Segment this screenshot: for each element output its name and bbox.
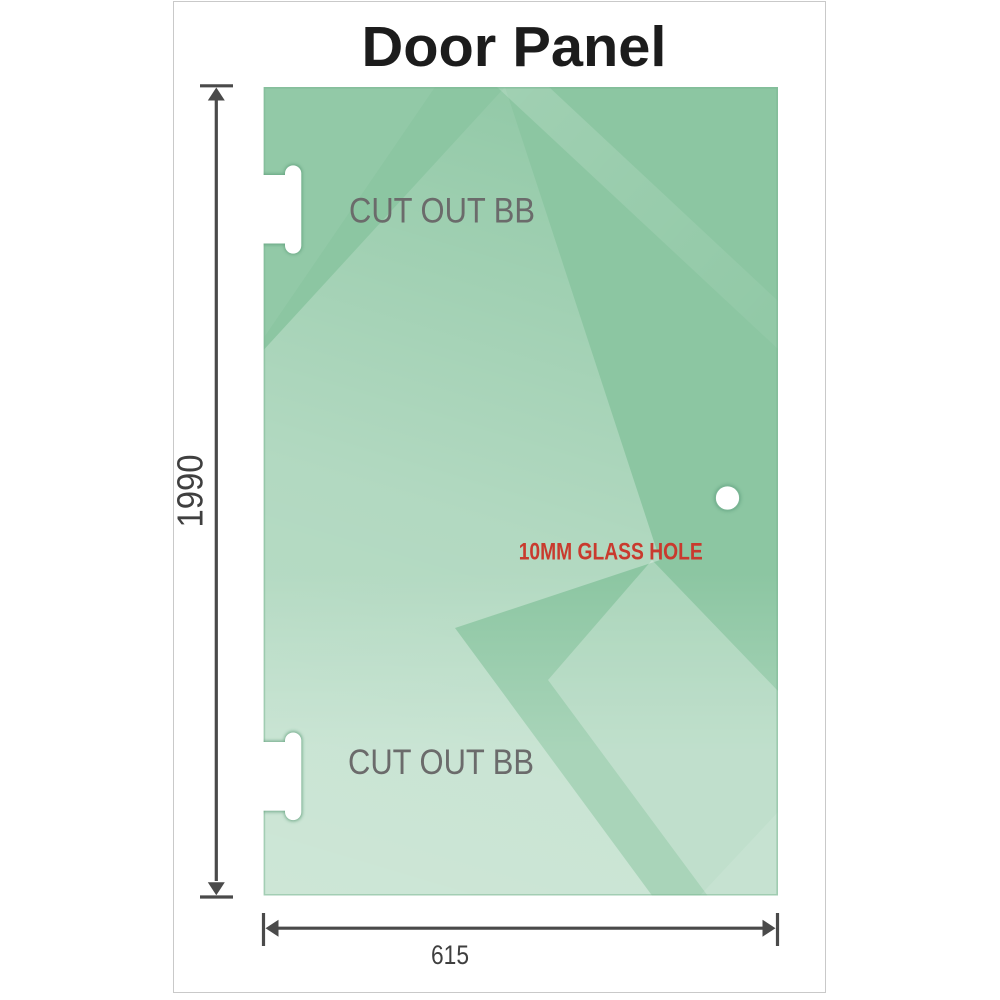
svg-text:CUT OUT BB: CUT OUT BB	[349, 192, 535, 231]
svg-text:CUT OUT BB: CUT OUT BB	[348, 743, 534, 782]
svg-text:10MM GLASS HOLE: 10MM GLASS HOLE	[519, 539, 703, 566]
svg-text:Door Panel: Door Panel	[362, 15, 667, 79]
svg-text:1990: 1990	[170, 455, 211, 528]
svg-text:615: 615	[431, 940, 469, 970]
